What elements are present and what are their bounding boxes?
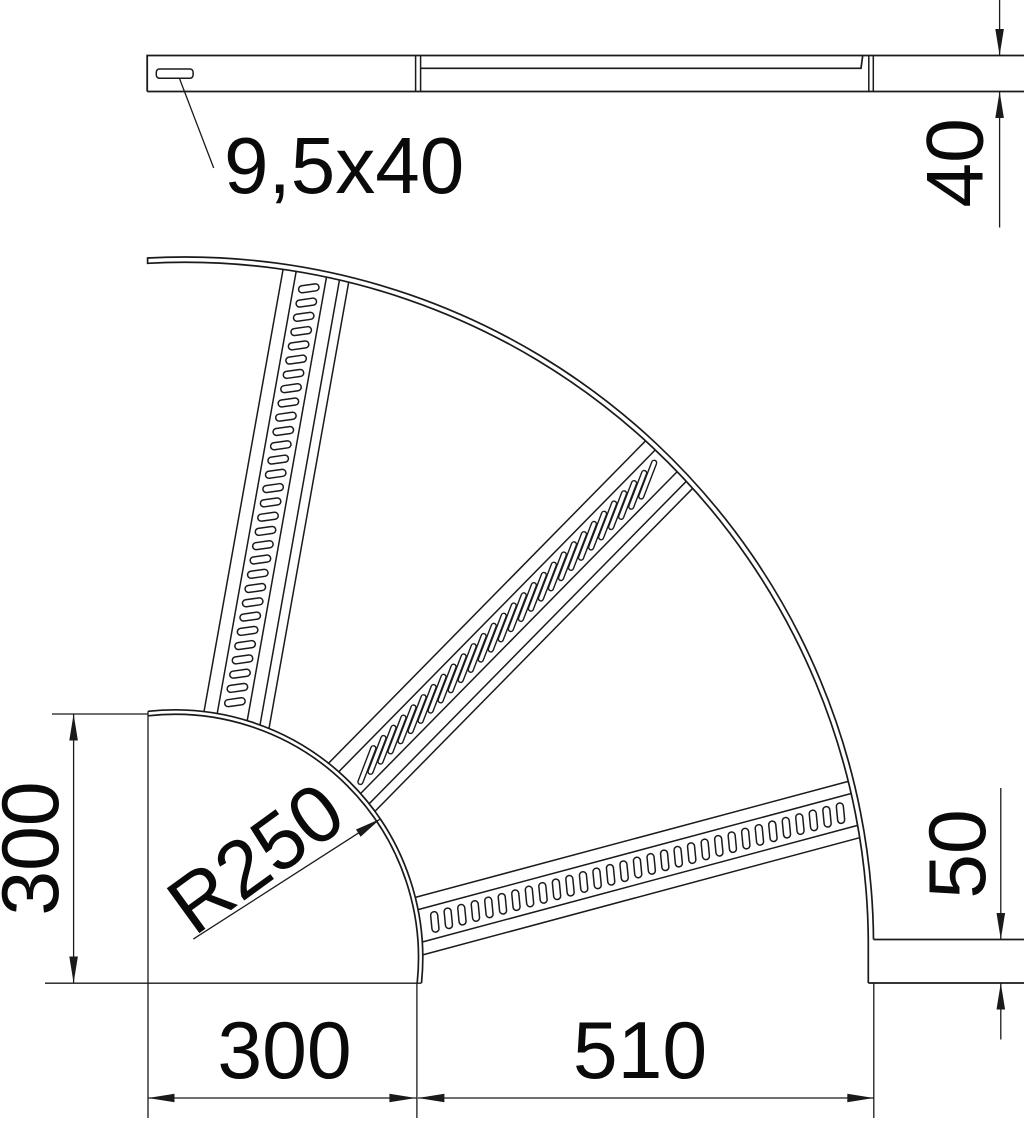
svg-text:40: 40: [910, 118, 1000, 208]
svg-text:300: 300: [0, 781, 76, 915]
svg-text:510: 510: [573, 1006, 707, 1096]
svg-text:9,5x40: 9,5x40: [224, 121, 464, 210]
svg-text:300: 300: [217, 1006, 351, 1096]
svg-text:50: 50: [913, 809, 1003, 899]
